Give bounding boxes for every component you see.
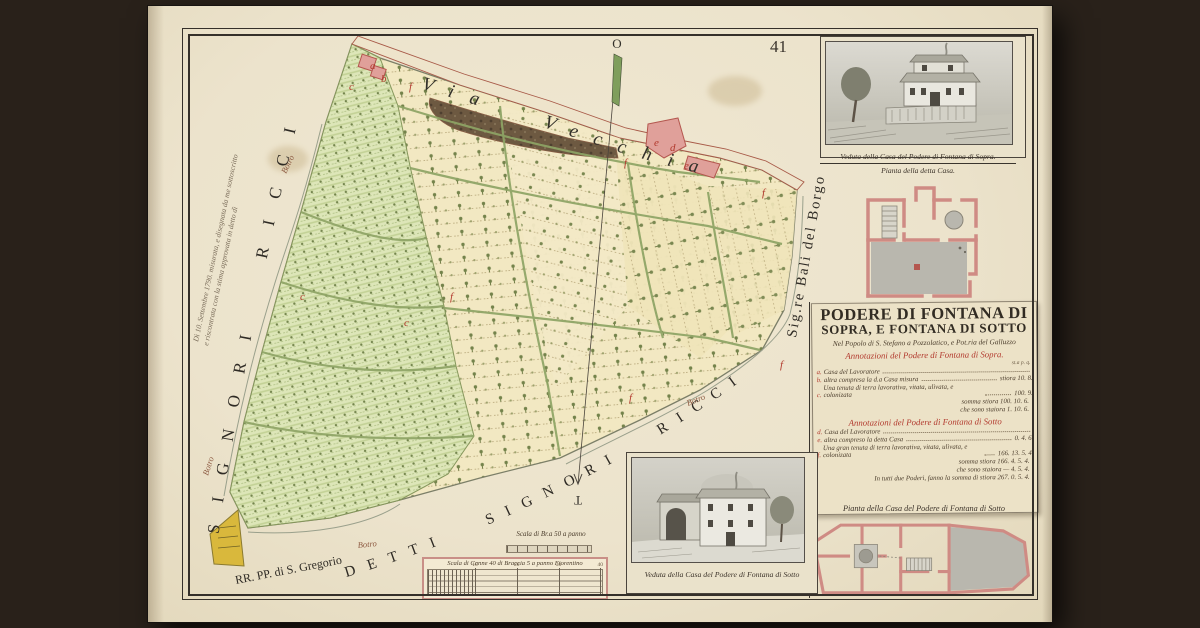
row-value: 0. 4. 6. [1015,434,1034,441]
front-door [726,532,735,546]
scale-tick [559,568,560,595]
scale-number: 30 [556,562,562,568]
annotation-total: In tutti due Poderi, fanno la somma di s… [818,474,1030,483]
row-value: stiora 10. 8. [1000,374,1033,381]
barn-arch-door [666,508,686,540]
plan-hearth-mark [914,264,920,270]
chimney-smoke [736,472,737,489]
marginal-note: Dì 10. Settembre 1790. misurata, e diseg… [191,153,240,346]
dotted-leader [883,371,1030,374]
parcel-letter: c [404,317,409,329]
dotted-leader [984,454,995,455]
pianta-sopra-caption: Pianta della detta Casa. [816,166,1020,175]
veduta-sopra-panel [820,36,1026,158]
parcel-letter: f [780,359,785,371]
row-letter: e. [817,437,822,444]
dotted-leader [921,379,996,381]
veduta-sotto-panel: Veduta della Casa del Podere di Fontana … [626,452,818,594]
dotted-leader [985,394,1012,395]
row-text: altra compreso la detta Casa [824,436,903,444]
porch-opening [930,92,940,106]
row-letter: f. [817,452,821,459]
pianta-sotto-caption: Pianta della Casa del Podere di Fontana … [808,504,1040,513]
tree [770,496,794,524]
annotation-row: f. Una gran tenuta di terra lavorativa, … [817,442,1033,458]
row-letter: d. [817,429,822,436]
caption-rule [820,163,1016,164]
compass-label-bottom: T [574,493,582,508]
row-value: 100. 9. [1014,389,1033,396]
row-letter: c. [817,392,822,399]
chimney-smoke [946,43,947,55]
boundary-label-rr-pp: RR. PP. di S. Gregorio [234,553,343,587]
pianta-sopra-plan [838,178,1014,300]
row-text: Casa del Lavoratore [824,368,880,376]
scale-tick [517,568,518,595]
farmhouse-upper [914,62,964,73]
scanned-map-photo: a b c f f e d e f f c f f c Botro Botro … [0,0,1200,628]
title-annotation-slip: PODERE DI FONTANA DI SOPRA, E FONTANA DI… [811,301,1039,515]
scale-number: 10 [472,562,478,568]
parcel-letter: c [300,291,305,303]
map-sheet: a b c f f e d e f f c f f c Botro Botro … [148,6,1052,622]
scale-large: Scala di Canne 40 di Braccia 5 a panno F… [422,557,608,600]
parcel-letter: b [381,73,387,85]
annotation-row: c. Una tenuta di terra lavorativa, vitat… [817,382,1033,398]
veduta-sotto-drawing [631,457,805,563]
map-subtitle: Nel Popolo di S. Stefano a Pozzolatico, … [816,336,1032,347]
pianta-sotto-plan [804,517,1040,599]
veduta-sotto-caption: Veduta della Casa del Podere di Fontana … [631,570,813,579]
scale-subdivisions [428,570,475,594]
scale-tick [475,568,476,595]
compass-needle [612,54,622,106]
sheet-number: 41 [770,37,787,56]
scale-small-bar [506,545,592,553]
row-letter: a. [817,369,822,376]
row-value: 166. 13. 5. 4. [998,449,1034,456]
parcel-letter: c [349,81,354,93]
row-text: Una tenuta di terra lavorativa, vitata, … [823,383,981,399]
map-title-line2: SOPRA, E FONTANA DI SOTTO [816,321,1032,338]
annotation-total: che sono staiora 1. 10. 6. [817,406,1029,415]
veduta-sopra-caption: Veduta della Casa del Podere di Fontana … [816,152,1020,161]
terrace-wall [886,104,976,124]
row-text: Una gran tenuta di terra lavorativa, vit… [823,443,981,459]
plan-oven-circle [945,211,963,229]
scale-number: 40 [598,562,604,568]
stream-label: Botro [357,538,377,550]
tree [841,67,871,101]
veduta-sopra-drawing [825,41,1013,145]
row-text: altra compresa la d.a Casa misura [824,376,919,384]
scale-large-bar: 10 20 30 40 [427,569,603,595]
compass-label-top: O [612,36,621,51]
parcel-letter: a [370,60,376,72]
row-letter: b. [817,377,822,384]
row-text: Casa del Lavoratore [824,428,880,436]
dotted-leader [883,431,1030,434]
scale-number: 20 [514,562,520,568]
scale-tick [600,568,601,595]
scale-small-label: Scala di Br.a 50 a panno [466,530,636,538]
dotted-leader [906,439,1012,441]
